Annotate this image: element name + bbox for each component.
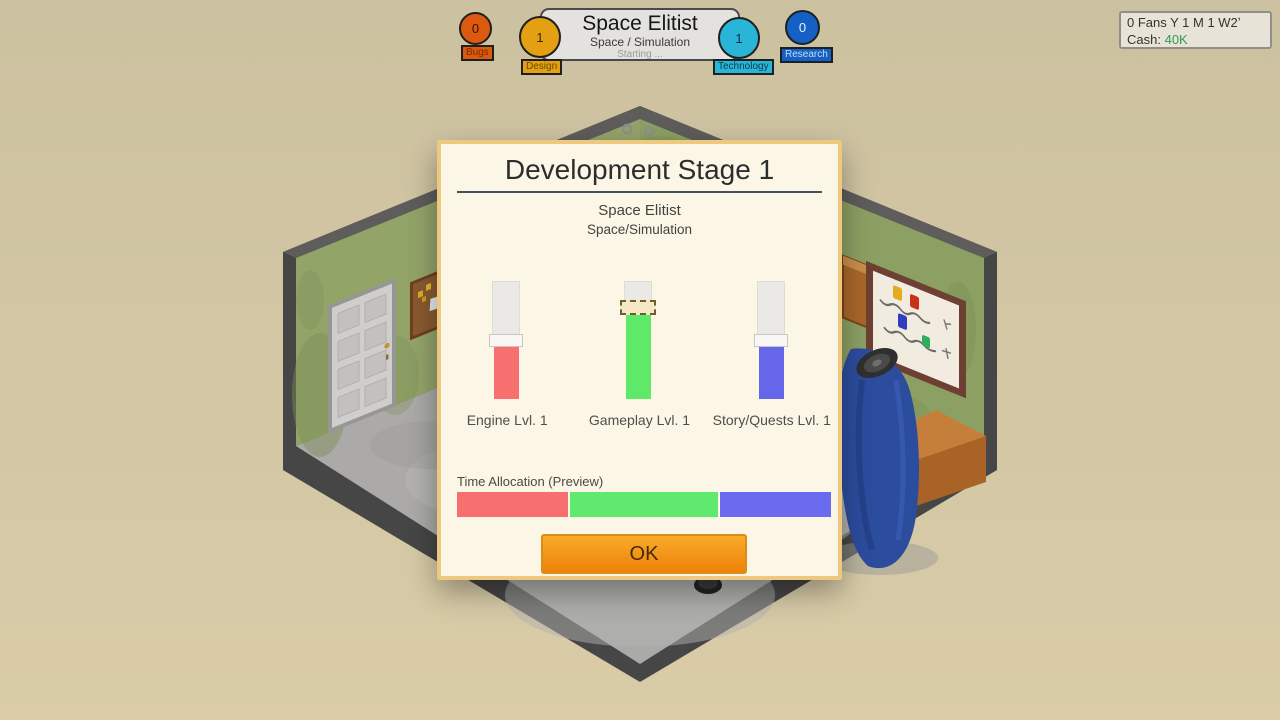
time-segment-story — [720, 492, 831, 517]
game-genre: Space / Simulation — [542, 36, 738, 49]
development-stage-dialog: Development Stage 1 Space Elitist Space/… — [437, 140, 842, 580]
game-header-panel: Space Elitist Space / Simulation Startin… — [540, 8, 740, 61]
dialog-game-genre: Space/Simulation — [441, 222, 838, 237]
time-allocation-bar — [457, 492, 831, 517]
research-count: 0 — [799, 20, 806, 35]
bugs-count: 0 — [472, 21, 479, 36]
story-slider-group: Story/Quests Lvl. 1 — [706, 281, 838, 428]
gameplay-slider-handle[interactable] — [620, 300, 656, 315]
ok-button[interactable]: OK — [541, 534, 747, 574]
stats-hud: 0 Fans Y 1 M 1 W2ʼ Cash: 40K — [1119, 11, 1272, 49]
engine-slider-group: Engine Lvl. 1 — [441, 281, 573, 428]
gameplay-slider-label: Gameplay Lvl. 1 — [573, 412, 705, 428]
design-count-badge[interactable]: 1 — [519, 16, 561, 58]
engine-slider-handle[interactable] — [489, 334, 523, 347]
gameplay-slider[interactable] — [621, 281, 657, 399]
game-status: Starting ... — [542, 49, 738, 61]
game-title: Space Elitist — [542, 12, 738, 36]
research-badge-label: Research — [780, 47, 833, 63]
technology-badge-label: Technology — [713, 59, 774, 75]
sliders-row: Engine Lvl. 1 Gameplay Lvl. 1 Story/Ques… — [441, 281, 838, 428]
time-segment-gameplay — [570, 492, 718, 517]
gameplay-slider-fill — [626, 315, 651, 399]
title-divider — [457, 191, 822, 193]
story-slider-handle[interactable] — [754, 334, 788, 347]
bugs-badge-label: Bugs — [461, 45, 494, 61]
design-badge-label: Design — [521, 59, 562, 75]
dialog-game-name: Space Elitist — [441, 202, 838, 219]
engine-slider-fill — [494, 347, 519, 399]
cash-value: 40K — [1165, 32, 1188, 47]
design-count: 1 — [536, 30, 543, 45]
technology-count: 1 — [735, 31, 742, 46]
fans-date-line: 0 Fans Y 1 M 1 W2ʼ — [1127, 14, 1264, 31]
engine-slider-label: Engine Lvl. 1 — [441, 412, 573, 428]
story-slider-fill — [759, 347, 784, 399]
technology-count-badge[interactable]: 1 — [718, 17, 760, 59]
engine-slider[interactable] — [489, 281, 525, 399]
time-segment-engine — [457, 492, 568, 517]
bugs-count-badge[interactable]: 0 — [459, 12, 492, 45]
story-slider[interactable] — [754, 281, 790, 399]
cash-label: Cash: — [1127, 32, 1161, 47]
gameplay-slider-group: Gameplay Lvl. 1 — [573, 281, 705, 428]
research-count-badge[interactable]: 0 — [785, 10, 820, 45]
time-allocation-label: Time Allocation (Preview) — [457, 474, 603, 489]
story-slider-label: Story/Quests Lvl. 1 — [706, 412, 838, 428]
cash-line: Cash: 40K — [1127, 31, 1264, 48]
dialog-title: Development Stage 1 — [441, 154, 838, 186]
